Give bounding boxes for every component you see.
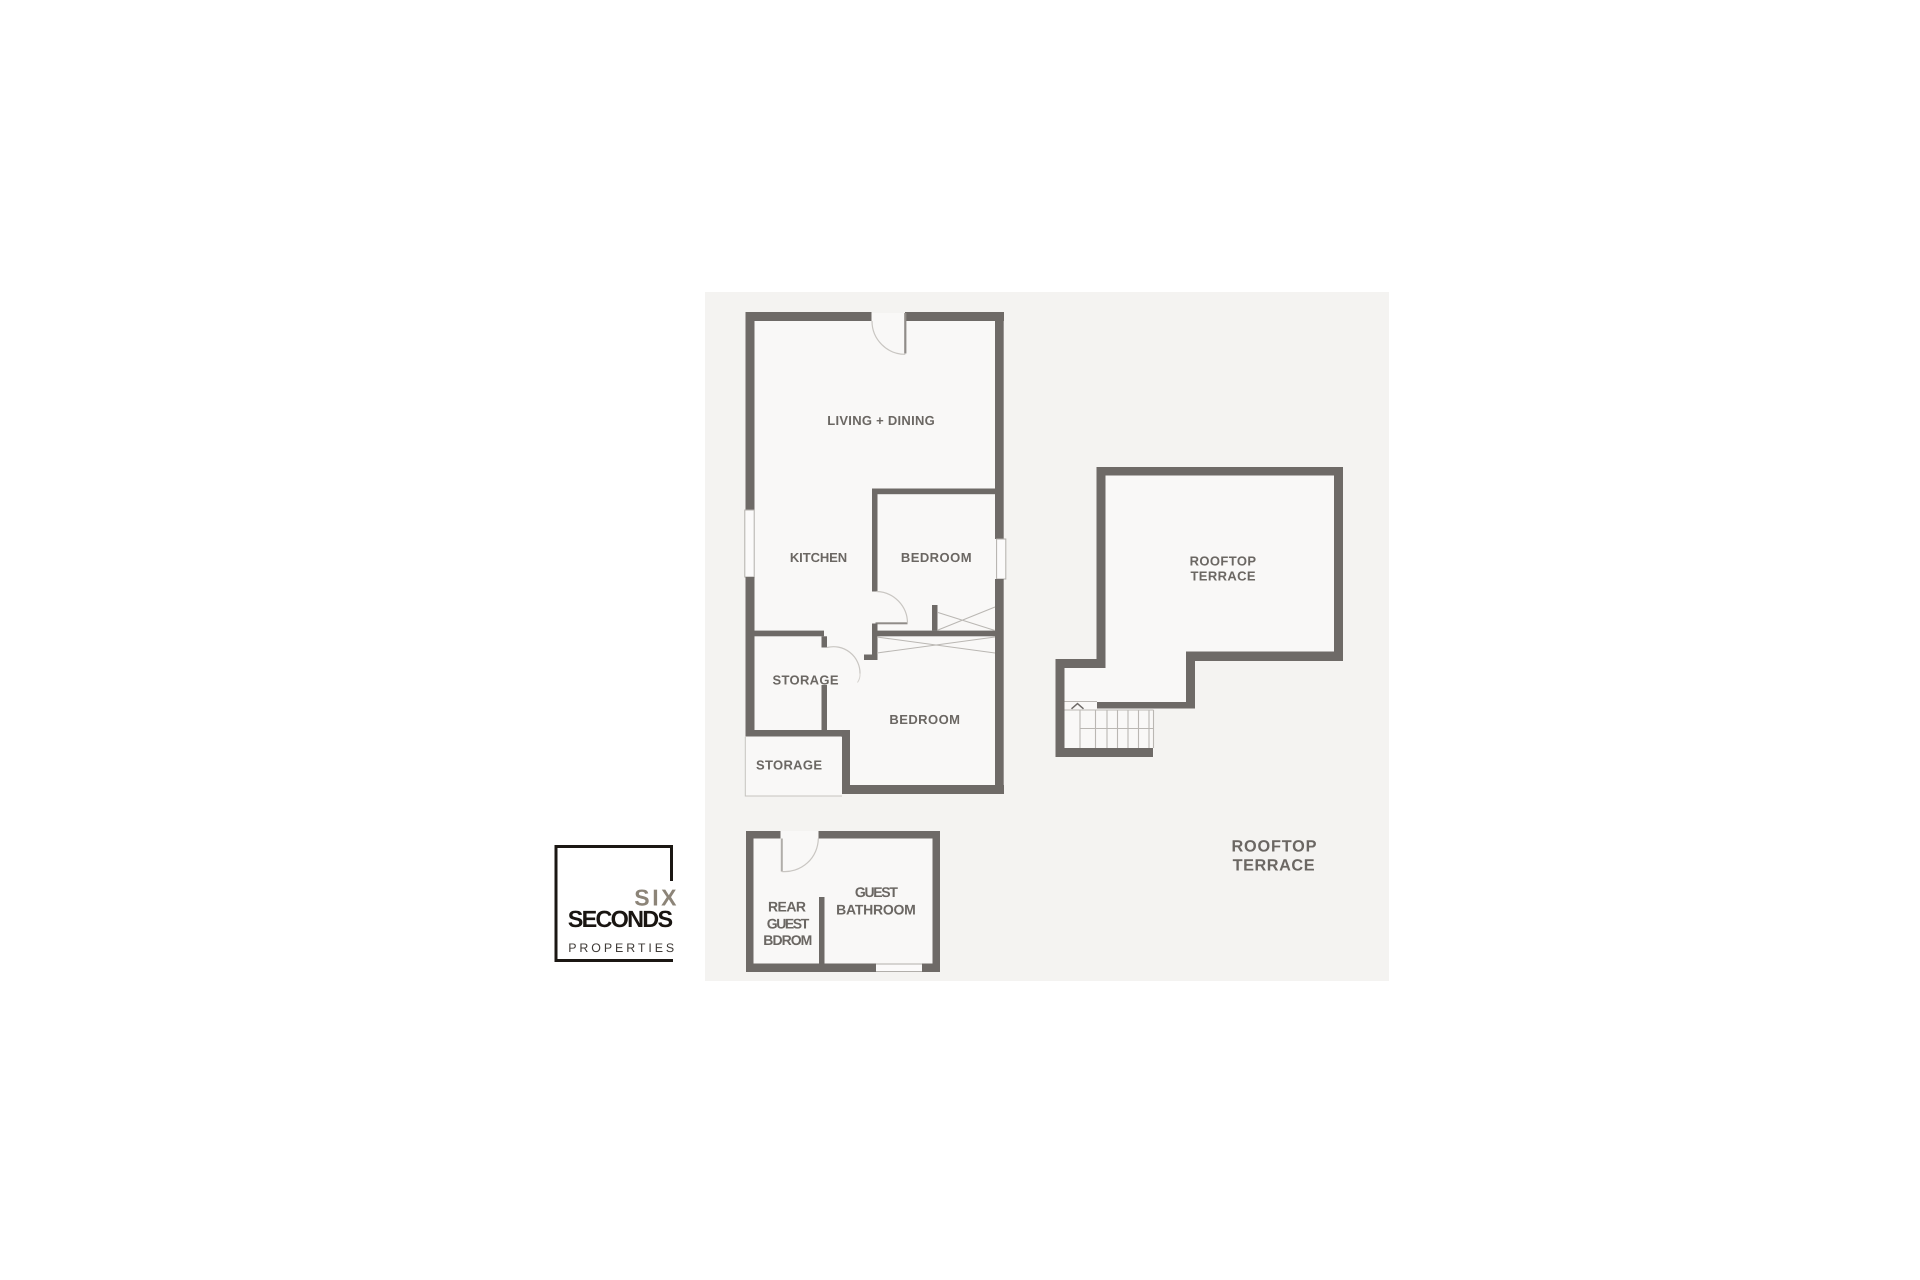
svg-text:REAR: REAR <box>768 899 806 915</box>
svg-text:TERRACE: TERRACE <box>1233 856 1315 874</box>
svg-text:SECONDS: SECONDS <box>568 906 673 932</box>
svg-text:KITCHEN: KITCHEN <box>790 550 847 565</box>
svg-text:GUEST: GUEST <box>767 915 810 931</box>
svg-text:STORAGE: STORAGE <box>773 673 839 688</box>
svg-text:STORAGE: STORAGE <box>756 758 822 773</box>
svg-text:LIVING + DINING: LIVING + DINING <box>827 413 935 428</box>
svg-text:BATHROOM: BATHROOM <box>836 901 916 917</box>
svg-text:BEDROOM: BEDROOM <box>889 712 960 727</box>
svg-text:BEDROOM: BEDROOM <box>901 550 972 565</box>
svg-text:PROPERTIES: PROPERTIES <box>568 941 674 955</box>
svg-text:BDROM: BDROM <box>763 932 812 948</box>
svg-text:GUEST: GUEST <box>855 884 898 900</box>
svg-text:ROOFTOP: ROOFTOP <box>1232 838 1317 856</box>
svg-text:TERRACE: TERRACE <box>1191 568 1256 583</box>
svg-text:ROOFTOP: ROOFTOP <box>1190 554 1257 569</box>
